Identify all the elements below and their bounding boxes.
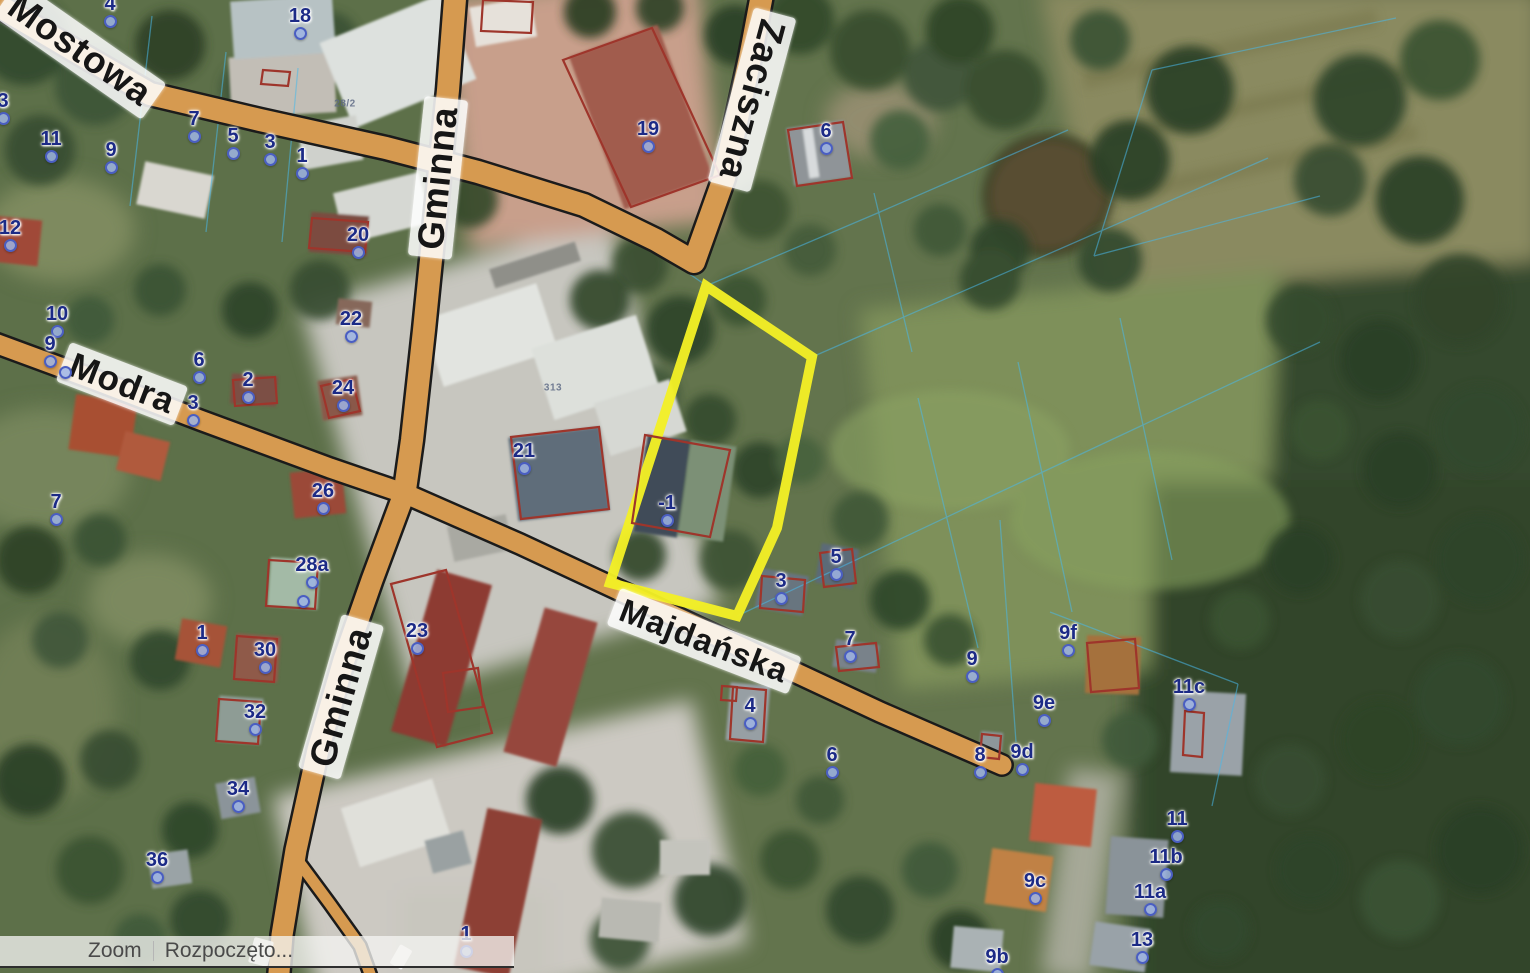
marker-label: 24	[332, 378, 354, 398]
parcel-number: 28/2	[334, 99, 355, 110]
marker-dot-icon[interactable]	[830, 568, 843, 581]
marker-dot-icon[interactable]	[227, 147, 240, 160]
marker-label: 9b	[985, 947, 1008, 967]
marker-label: 5	[830, 547, 841, 567]
marker-label: 6	[193, 350, 204, 370]
marker-dot-icon[interactable]	[1029, 892, 1042, 905]
marker-label: 3	[187, 393, 198, 413]
marker-label: -1	[658, 493, 676, 513]
marker-label: 30	[254, 640, 276, 660]
marker-label: 5	[227, 126, 238, 146]
marker-label: 11	[40, 129, 61, 149]
marker-dot-icon[interactable]	[259, 661, 272, 674]
marker-dot-icon[interactable]	[411, 642, 424, 655]
marker-dot-icon[interactable]	[1144, 903, 1157, 916]
marker-label: 21	[513, 441, 535, 461]
marker-dot-icon[interactable]	[104, 15, 117, 28]
marker-dot-icon[interactable]	[974, 766, 987, 779]
marker-label: 6	[820, 121, 831, 141]
marker-label: 23	[406, 621, 428, 641]
marker-dot-icon[interactable]	[151, 871, 164, 884]
marker-label: 10	[46, 304, 68, 324]
marker-label: 11a	[1134, 882, 1166, 902]
marker-dot-icon[interactable]	[1171, 830, 1184, 843]
marker-dot-icon[interactable]	[826, 766, 839, 779]
marker-dot-icon[interactable]	[45, 150, 58, 163]
marker-label: 6	[826, 745, 837, 765]
zoom-button[interactable]: Zoom	[88, 939, 142, 963]
marker-dot-icon[interactable]	[242, 391, 255, 404]
marker-label: 9f	[1059, 623, 1077, 643]
marker-dot-icon[interactable]	[1062, 644, 1075, 657]
marker-label: 7	[188, 109, 199, 129]
marker-dot-icon[interactable]	[1016, 763, 1029, 776]
marker-dot-icon[interactable]	[775, 592, 788, 605]
marker-dot-icon[interactable]	[4, 239, 17, 252]
marker-label: 11c	[1173, 677, 1205, 697]
marker-label: 7	[844, 629, 855, 649]
marker-dot-icon[interactable]	[337, 399, 350, 412]
marker-dot-icon[interactable]	[1038, 714, 1051, 727]
marker-label: 19	[637, 119, 659, 139]
marker-dot-icon[interactable]	[966, 670, 979, 683]
marker-dot-icon[interactable]	[317, 502, 330, 515]
marker-label: 1	[196, 623, 207, 643]
marker-label: 28a	[295, 555, 328, 575]
marker-label: 4	[744, 696, 755, 716]
marker-label: 32	[244, 702, 266, 722]
marker-dot-icon[interactable]	[232, 800, 245, 813]
marker-label: 9d	[1010, 742, 1033, 762]
marker-label: 11	[1166, 809, 1187, 829]
marker-label: 20	[347, 225, 369, 245]
marker-dot-icon[interactable]	[59, 366, 72, 379]
marker-dot-icon[interactable]	[306, 576, 319, 589]
marker-dot-icon[interactable]	[1183, 698, 1196, 711]
status-bar-divider	[153, 941, 154, 961]
marker-dot-icon[interactable]	[196, 644, 209, 657]
marker-label: 9c	[1024, 871, 1046, 891]
marker-label: 8	[974, 745, 985, 765]
marker-dot-icon[interactable]	[642, 140, 655, 153]
marker-dot-icon[interactable]	[345, 330, 358, 343]
marker-dot-icon[interactable]	[744, 717, 757, 730]
marker-label: 22	[340, 309, 362, 329]
marker-label: 3	[264, 132, 275, 152]
marker-dot-icon[interactable]	[193, 371, 206, 384]
marker-label: 26	[312, 481, 334, 501]
marker-label: 7	[50, 492, 61, 512]
marker-label: 34	[227, 779, 249, 799]
status-loading-text: Rozpoczęto...	[165, 939, 293, 963]
marker-dot-icon[interactable]	[844, 650, 857, 663]
marker-dot-icon[interactable]	[264, 153, 277, 166]
marker-dot-icon[interactable]	[188, 130, 201, 143]
marker-label: 9e	[1033, 693, 1055, 713]
marker-dot-icon[interactable]	[352, 246, 365, 259]
marker-label: 11b	[1149, 847, 1182, 867]
marker-dot-icon[interactable]	[187, 414, 200, 427]
marker-label: 9	[44, 334, 55, 354]
marker-dot-icon[interactable]	[518, 462, 531, 475]
marker-dot-icon[interactable]	[249, 723, 262, 736]
marker-dot-icon[interactable]	[50, 513, 63, 526]
marker-label: 12	[0, 218, 21, 238]
marker-label: 36	[146, 850, 168, 870]
marker-dot-icon[interactable]	[297, 595, 310, 608]
marker-label: 18	[289, 6, 311, 26]
status-bar: Zoom Rozpoczęto...	[0, 936, 514, 968]
marker-label: 9	[966, 649, 977, 669]
marker-label: 2	[242, 370, 253, 390]
marker-label: 1	[296, 146, 307, 166]
marker-dot-icon[interactable]	[296, 167, 309, 180]
marker-dot-icon[interactable]	[44, 355, 57, 368]
marker-dot-icon[interactable]	[294, 27, 307, 40]
map-viewport[interactable]: MostowaGminnaZacisznaModraGminnaMajdańsk…	[0, 0, 1530, 973]
marker-dot-icon[interactable]	[661, 514, 674, 527]
marker-label: 3	[775, 571, 786, 591]
marker-label: 13	[1131, 930, 1153, 950]
marker-label: 3	[0, 91, 9, 111]
marker-dot-icon[interactable]	[1136, 951, 1149, 964]
marker-dot-icon[interactable]	[820, 142, 833, 155]
marker-dot-icon[interactable]	[1160, 868, 1173, 881]
marker-dot-icon[interactable]	[105, 161, 118, 174]
parcel-number: 313	[544, 383, 562, 394]
marker-label: 9	[105, 140, 116, 160]
marker-label: 4	[104, 0, 115, 14]
